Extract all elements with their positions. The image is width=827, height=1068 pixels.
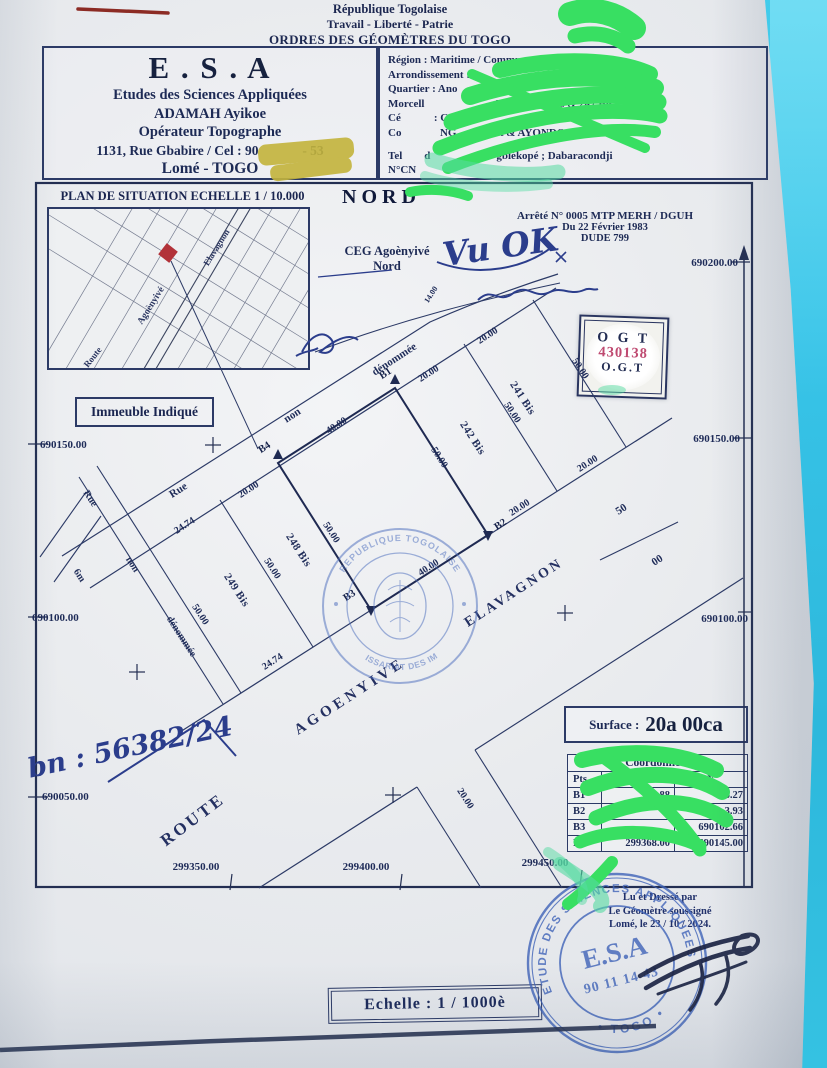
ogt-sticker: O G T 430138 O.G.T xyxy=(577,314,670,399)
row-y: 6.27 xyxy=(675,788,747,803)
decree-line: Arrêté N° 0005 MTP MERH / DGUH xyxy=(470,210,740,222)
table-row: B2 3.93 xyxy=(568,804,747,820)
header-country: République Togolaise xyxy=(0,2,780,17)
col-x: X xyxy=(602,772,675,787)
firm-title: E . S . A xyxy=(44,50,376,86)
situation-map: Elavagnon Agoènyivé Route xyxy=(47,207,310,370)
surface-label: Surface : xyxy=(589,717,639,733)
photo-of-survey-plan: République Togolaise Travail - Liberté -… xyxy=(0,0,827,1068)
coordinates-table-header: Pts X Y xyxy=(568,772,747,788)
firm-line: Opérateur Topographe xyxy=(44,123,376,142)
ceg-line2: Nord xyxy=(322,259,452,274)
ogt-text-small: O.G.T xyxy=(585,359,659,377)
row-y: 3.93 xyxy=(675,804,747,819)
cert-line2: Le Géomètre soussigné xyxy=(560,905,760,919)
admin-arrondissement: Arrondissement : yivé xyxy=(388,68,766,83)
row-x: 88 xyxy=(602,788,675,803)
surface-box: Surface : 20a 00ca xyxy=(564,706,748,743)
document-header: République Togolaise Travail - Liberté -… xyxy=(0,2,780,48)
row-x: 299368.00 xyxy=(602,836,675,851)
document-content: République Togolaise Travail - Liberté -… xyxy=(0,0,827,1068)
admin-cession: Cé : C xyxy=(388,111,766,126)
col-y: Y xyxy=(675,772,747,787)
surface-value: 20a 00ca xyxy=(645,712,723,737)
table-row: B3 690102.66 xyxy=(568,820,747,836)
firm-line-address: 1131, Rue Gbabire / Cel : 90 - 53 xyxy=(44,142,376,161)
admin-region: Région : Maritime / Commune Agoènyivé 1 xyxy=(388,53,766,68)
decree-block: Arrêté N° 0005 MTP MERH / DGUH Du 22 Fév… xyxy=(470,210,740,244)
ceg-label: CEG Agoènyivé Nord xyxy=(322,244,452,274)
coordinates-table-title: Coordonnées xyxy=(568,755,747,772)
admin-info-box: Région : Maritime / Commune Agoènyivé 1 … xyxy=(378,46,768,180)
map-street-route: Route xyxy=(82,345,104,369)
indicated-building-label: Immeuble Indiqué xyxy=(75,397,214,427)
firm-line: Etudes des Sciences Appliquées xyxy=(44,86,376,105)
table-row: B1 88 6.27 xyxy=(568,788,747,804)
surveyor-firm-box: E . S . A Etudes des Sciences Appliquées… xyxy=(42,46,378,180)
admin-cni: N°CN xyxy=(388,163,766,178)
row-y: 690145.00 xyxy=(675,836,747,851)
header-motto: Travail - Liberté - Patrie xyxy=(0,17,780,32)
situation-map-drawing: Elavagnon Agoènyivé Route xyxy=(49,209,310,370)
situation-plan-title: PLAN DE SITUATION ECHELLE 1 / 10.000 xyxy=(50,189,315,204)
row-x xyxy=(602,820,675,835)
row-pt: B3 xyxy=(568,820,602,835)
row-y: 690102.66 xyxy=(675,820,747,835)
decree-date: Du 22 Février 1983 xyxy=(470,222,740,233)
table-row: B4 299368.00 690145.00 xyxy=(568,836,747,851)
scale-box: Echelle : 1 / 1000è xyxy=(328,984,543,1024)
cert-line1: Lu et Dressé par xyxy=(560,891,760,905)
admin-morcellement: Morcell Lots n° s & 247 Bis xyxy=(388,97,766,112)
cert-line3: Lomé, le 23 / 10 / 2024. xyxy=(560,918,760,932)
admin-owners: Co NG et & AYONDO Messanvi xyxy=(388,126,766,141)
ceg-line1: CEG Agoènyivé xyxy=(322,244,452,259)
row-pt: B1 xyxy=(568,788,602,803)
north-label: NORD xyxy=(342,186,421,209)
row-pt: B2 xyxy=(568,804,602,819)
firm-line-city: Lomé - TOGO xyxy=(44,160,376,179)
decree-ref: DUDE 799 xyxy=(470,233,740,244)
col-pts: Pts xyxy=(568,772,602,787)
firm-line: ADAMAH Ayikoe xyxy=(44,105,376,124)
admin-quartier: Quartier : Ano xyxy=(388,82,766,97)
coordinates-table: Coordonnées Pts X Y B1 88 6.27 B2 3.93 B… xyxy=(567,754,748,852)
certification-block: Lu et Dressé par Le Géomètre soussigné L… xyxy=(560,891,760,932)
row-x xyxy=(602,804,675,819)
admin-tel: Tel d gblékopé ; Dabaracondji xyxy=(388,149,766,164)
scale-box-text: Echelle : 1 / 1000è xyxy=(331,987,539,1021)
row-pt: B4 xyxy=(568,836,602,851)
